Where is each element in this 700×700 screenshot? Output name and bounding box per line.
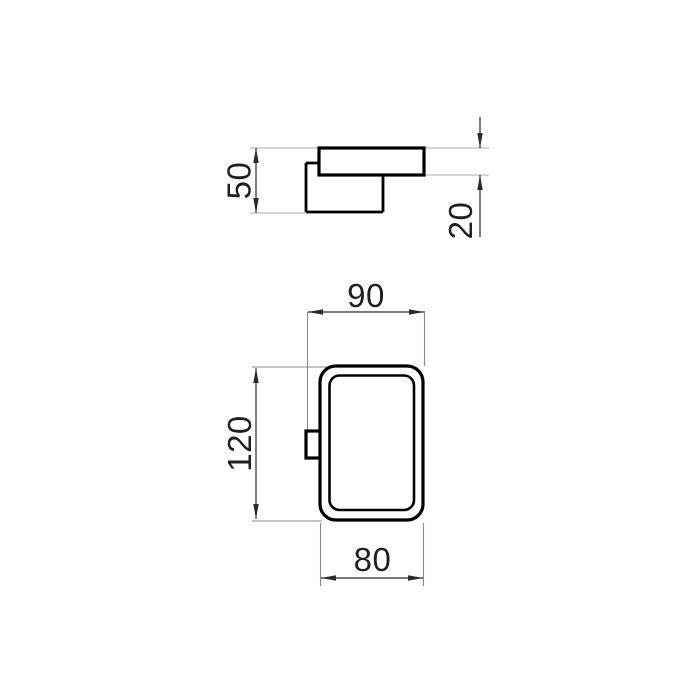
front-view: 90 120 80 <box>221 277 425 586</box>
dimension-overall-width-90: 90 <box>308 277 424 315</box>
dim-label-depth: 50 <box>221 162 258 200</box>
arrow-up-icon <box>253 368 258 383</box>
dim-label-body-width: 80 <box>354 541 392 578</box>
dimension-depth-50: 50 <box>221 148 259 213</box>
dimension-plate-thickness-20: 20 <box>442 117 483 239</box>
arrow-right-icon <box>409 309 424 314</box>
arrow-down-icon <box>253 504 258 519</box>
arrow-up-icon <box>477 175 482 190</box>
arrow-down-icon <box>477 133 482 148</box>
wall-plate-outline <box>319 148 424 175</box>
arrow-left-icon <box>308 309 323 314</box>
dimension-height-120: 120 <box>221 368 259 519</box>
outer-frame-outline <box>320 366 423 520</box>
dimension-body-width-80: 80 <box>321 541 423 581</box>
arrow-up-icon <box>253 148 258 163</box>
top-view: 50 20 <box>221 117 490 239</box>
drawing-canvas: 50 20 <box>0 0 700 700</box>
dim-label-height: 120 <box>221 415 258 472</box>
dim-label-plate-thickness: 20 <box>442 202 479 240</box>
dim-label-overall-width: 90 <box>347 277 385 314</box>
arrow-right-icon <box>408 575 423 580</box>
technical-drawing: 50 20 <box>0 0 700 700</box>
arrow-left-icon <box>321 575 336 580</box>
